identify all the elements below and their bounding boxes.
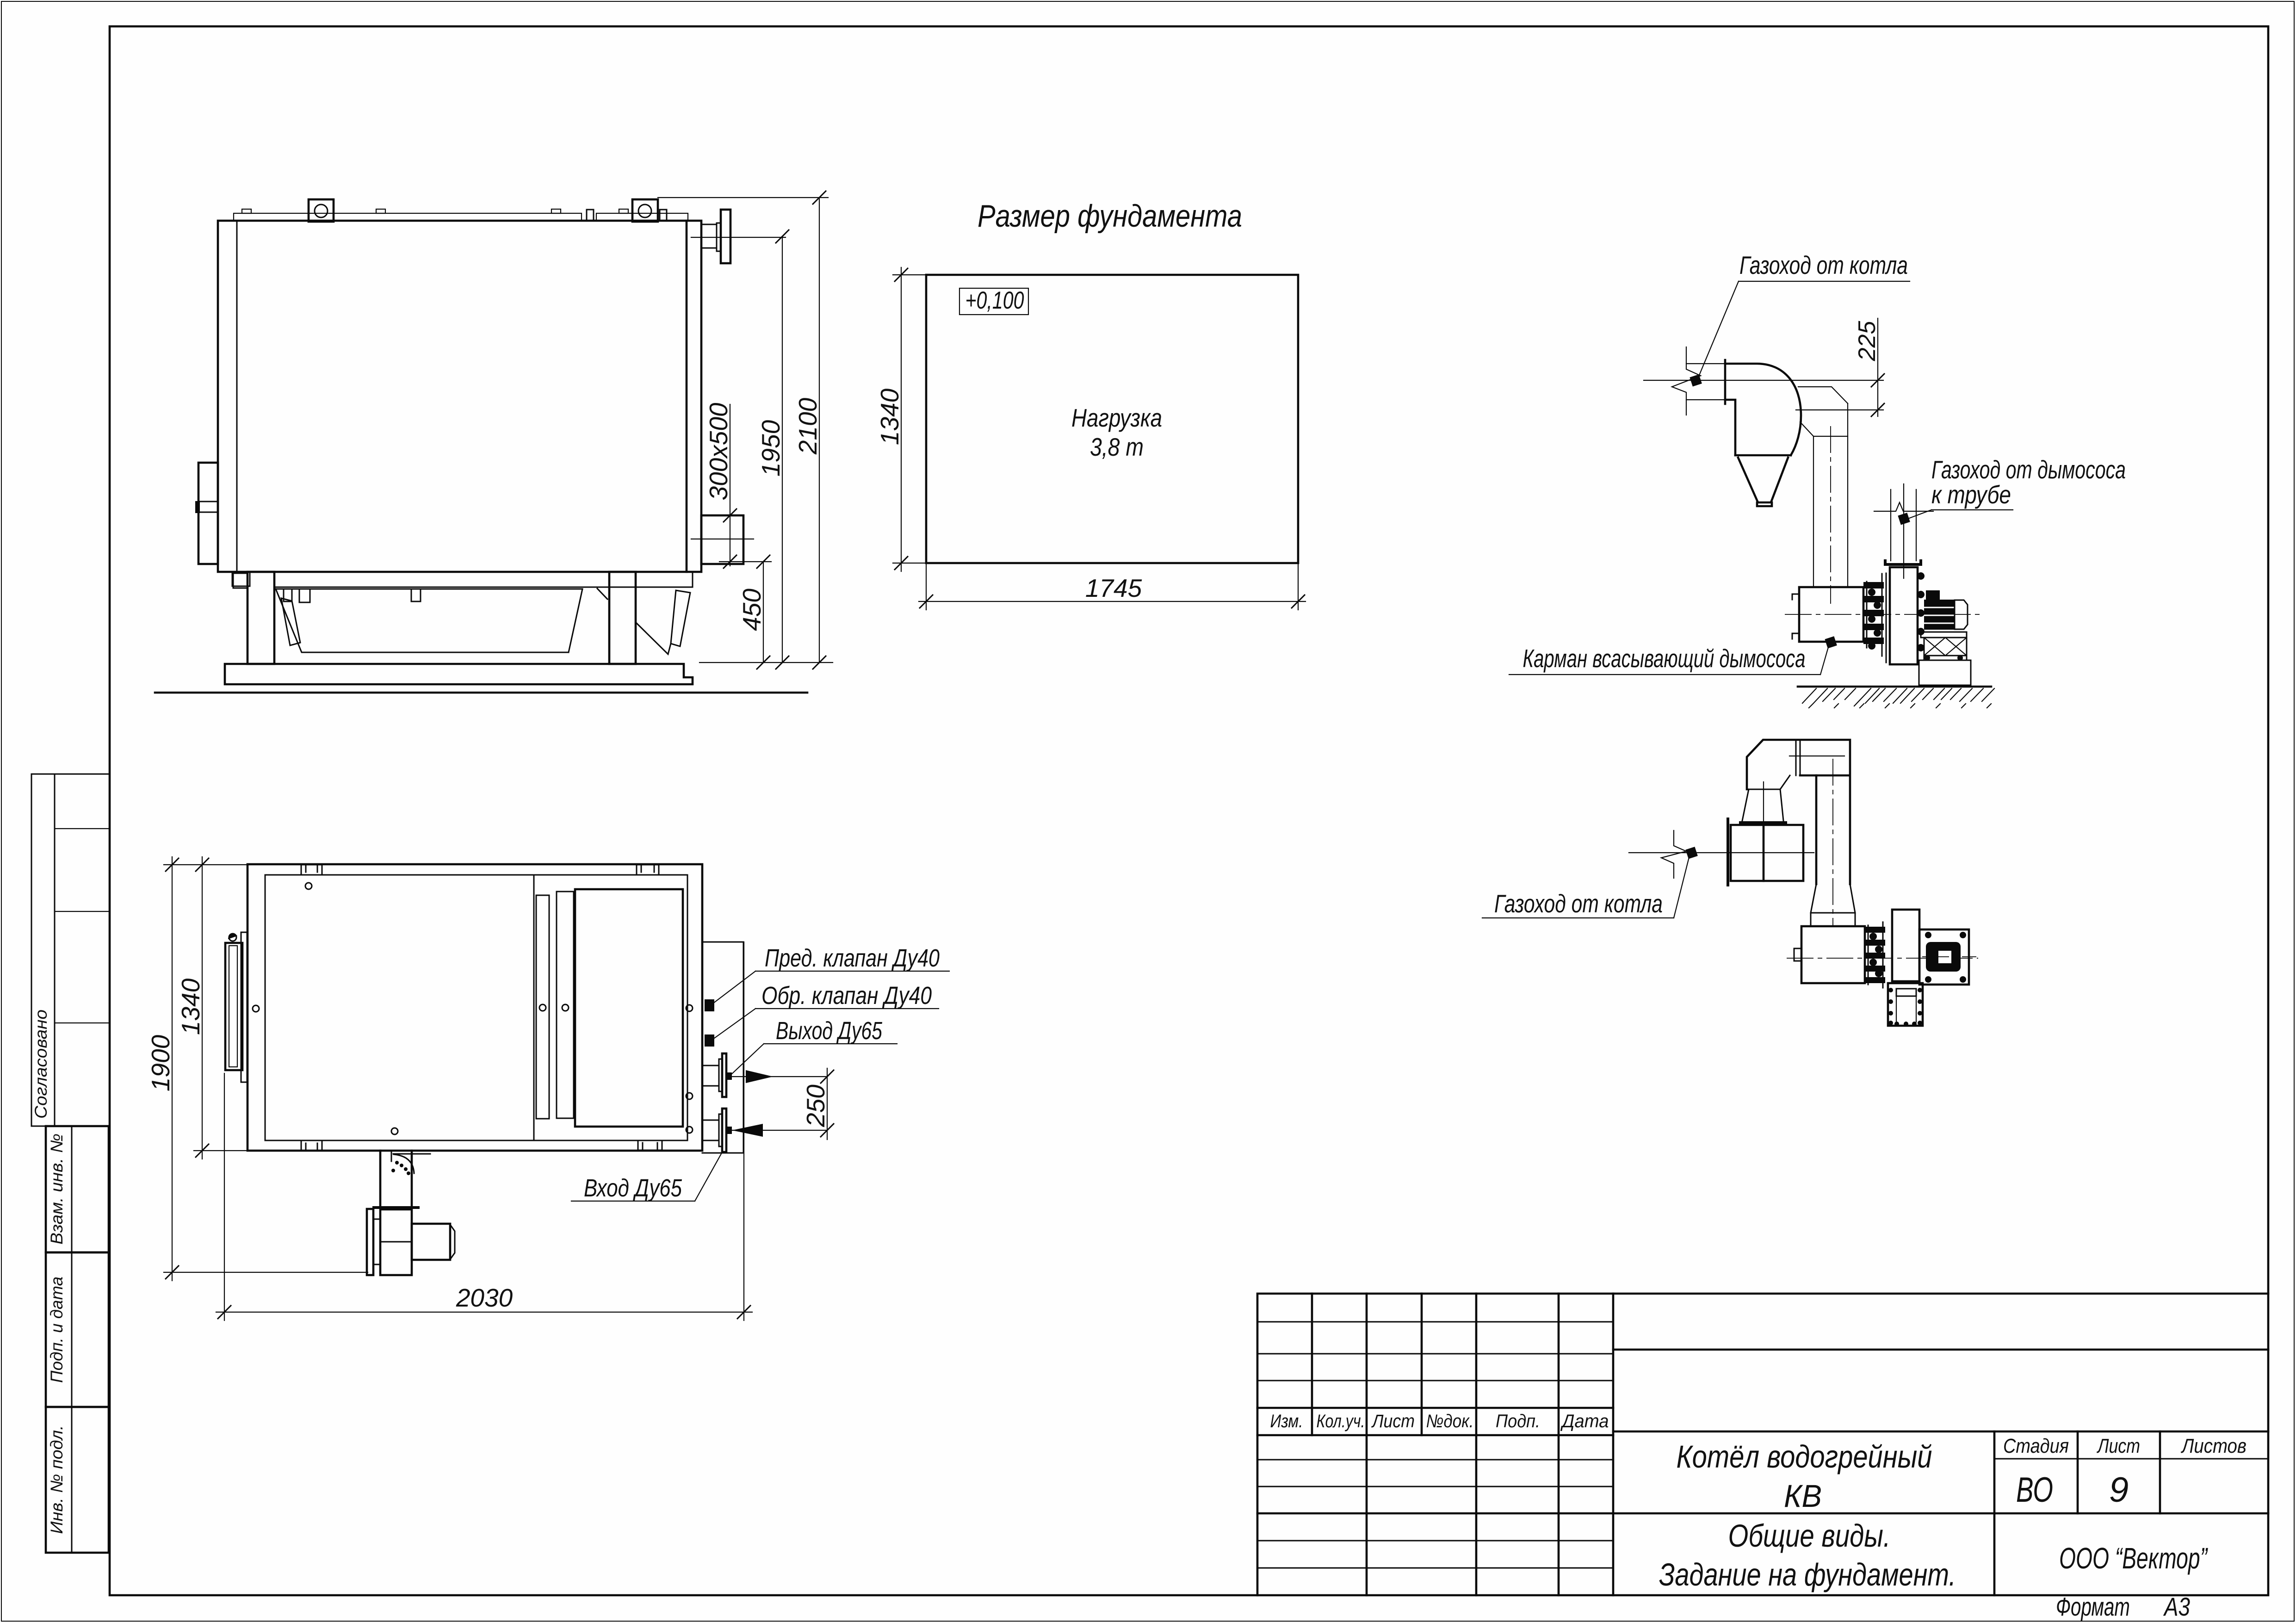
svg-text:Газоход от котла: Газоход от котла	[1739, 251, 1908, 279]
svg-text:Взам. инв. №: Взам. инв. №	[47, 1134, 66, 1245]
svg-text:Вход Ду65: Вход Ду65	[584, 1174, 682, 1202]
svg-text:Изм.: Изм.	[1270, 1411, 1303, 1431]
svg-text:Задание на фундамент.: Задание на фундамент.	[1659, 1557, 1956, 1592]
svg-text:Газоход от дымососа: Газоход от дымососа	[1931, 455, 2126, 484]
svg-text:Листов: Листов	[2180, 1435, 2246, 1457]
svg-text:1340: 1340	[875, 388, 904, 445]
svg-text:3,8 т: 3,8 т	[1090, 433, 1144, 461]
svg-text:2030: 2030	[456, 1283, 513, 1312]
svg-text:450: 450	[737, 588, 766, 631]
svg-text:Нагрузка: Нагрузка	[1071, 403, 1162, 432]
svg-text:Выход Ду65: Выход Ду65	[776, 1017, 883, 1045]
svg-text:250: 250	[801, 1084, 830, 1127]
svg-text:ООО “Вектор”: ООО “Вектор”	[2059, 1542, 2208, 1575]
svg-text:Стадия: Стадия	[2003, 1435, 2069, 1457]
svg-text:№док.: №док.	[1426, 1411, 1474, 1431]
svg-text:Котёл водогрейный: Котёл водогрейный	[1677, 1439, 1932, 1474]
svg-text:Обр. клапан Ду40: Обр. клапан Ду40	[761, 982, 932, 1010]
svg-text:+0,100: +0,100	[965, 287, 1024, 314]
svg-text:Формат: Формат	[2056, 1592, 2130, 1621]
svg-text:1950: 1950	[756, 420, 785, 477]
svg-text:Дата: Дата	[1560, 1411, 1609, 1431]
svg-text:Лист: Лист	[2097, 1435, 2140, 1457]
svg-text:Пред. клапан Ду40: Пред. клапан Ду40	[765, 944, 940, 972]
svg-text:225: 225	[1854, 321, 1881, 362]
svg-text:1900: 1900	[146, 1035, 175, 1091]
svg-text:Лист: Лист	[1371, 1411, 1415, 1431]
svg-text:КВ: КВ	[1784, 1478, 1822, 1514]
svg-text:Подп. и дата: Подп. и дата	[47, 1276, 66, 1383]
svg-text:Карман всасывающий дымососа: Карман всасывающий дымососа	[1523, 644, 1806, 673]
svg-text:к трубе: к трубе	[1931, 480, 2011, 509]
svg-text:Согласовано: Согласовано	[31, 1010, 50, 1119]
svg-text:2100: 2100	[793, 397, 822, 455]
svg-text:Подп.: Подп.	[1496, 1411, 1540, 1431]
svg-text:1745: 1745	[1085, 574, 1142, 602]
svg-text:Размер фундамента: Размер фундамента	[978, 198, 1242, 234]
svg-text:Кол.уч.: Кол.уч.	[1317, 1411, 1365, 1431]
svg-text:1340: 1340	[176, 978, 205, 1035]
svg-text:Инв. № подл.: Инв. № подл.	[47, 1425, 66, 1534]
svg-text:Общие виды.: Общие виды.	[1728, 1518, 1891, 1554]
svg-text:ВО: ВО	[2016, 1470, 2053, 1510]
svg-text:Газоход от котла: Газоход от котла	[1494, 889, 1663, 918]
svg-text:А3: А3	[2163, 1592, 2190, 1621]
svg-text:300х500: 300х500	[704, 403, 733, 500]
svg-text:9: 9	[2109, 1470, 2129, 1510]
